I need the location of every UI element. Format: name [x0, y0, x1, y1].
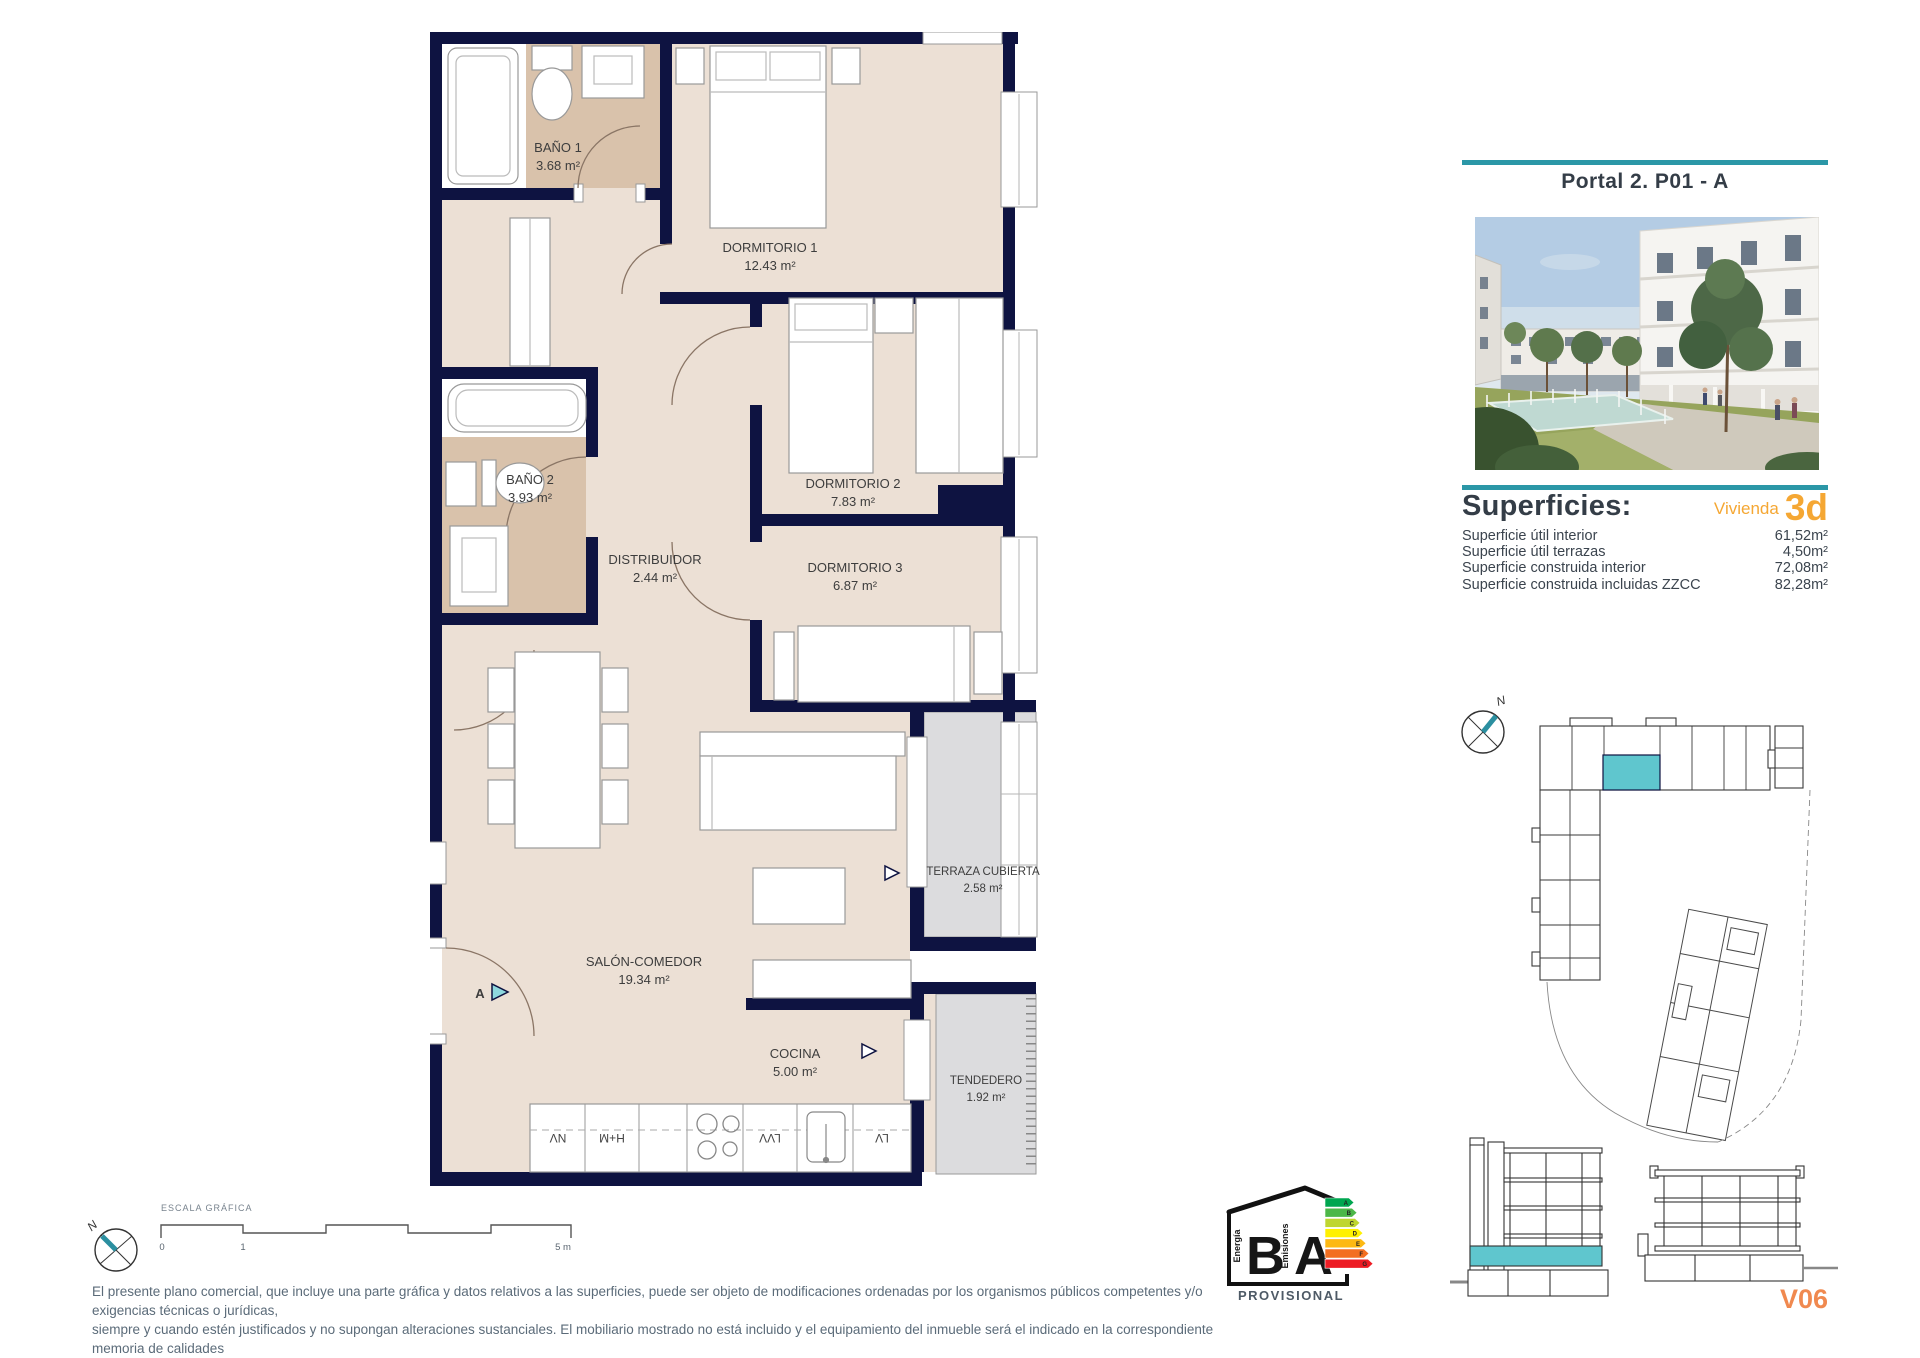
kitchen-sink — [807, 1112, 845, 1163]
energy-arrow — [1325, 1208, 1357, 1217]
table-row: Superficie útil terrazas 4,50m² — [1462, 544, 1828, 560]
page-title: Portal 2. P01 - A — [1460, 170, 1830, 194]
sofa-seat — [700, 756, 896, 830]
chair — [602, 724, 628, 768]
chair — [488, 668, 514, 712]
provisional-label: PROVISIONAL — [1238, 1288, 1344, 1303]
room-label: DORMITORIO 1 — [722, 240, 817, 255]
kitchen-peninsula — [753, 960, 911, 998]
sink-2a — [446, 462, 476, 506]
superficies-table: Superficie útil interior 61,52m² Superfi… — [1462, 528, 1828, 593]
dorm2-niche — [875, 298, 913, 333]
row-value: 72,08m² — [1775, 560, 1828, 576]
row-value: 4,50m² — [1783, 544, 1828, 560]
energy-badge: Energía B Emisiones A A B C D E F G PROV… — [1225, 1182, 1377, 1308]
table-row: Superficie construida incluidas ZZCC 82,… — [1462, 577, 1828, 593]
svg-text:B: B — [1347, 1211, 1352, 1217]
svg-text:C: C — [1350, 1221, 1355, 1227]
kitchen-counter — [530, 1104, 911, 1172]
scale-tick: 5 m — [555, 1242, 571, 1253]
scale-tick: 1 — [240, 1242, 245, 1253]
site-compass-icon: N — [1462, 693, 1507, 753]
room-label: DORMITORIO 2 — [805, 476, 900, 491]
room-label: SALÓN-COMEDOR — [586, 954, 702, 969]
section-right — [1638, 1166, 1838, 1281]
north-label: N — [86, 1217, 100, 1234]
chair — [602, 780, 628, 824]
kitchen-unit-label: LVV — [759, 1131, 781, 1145]
room-label: DORMITORIO 3 — [807, 560, 902, 575]
scale-label: ESCALA GRÁFICA — [161, 1203, 253, 1213]
room-label: BAÑO 2 — [506, 472, 554, 487]
energy-arrows — [1325, 1198, 1373, 1268]
row-value: 82,28m² — [1775, 577, 1828, 593]
toilet-1-bowl — [532, 68, 572, 120]
row-label: Superficie construida incluidas ZZCC — [1462, 577, 1701, 593]
room-area: 1.92 m² — [967, 1092, 1006, 1104]
disclaimer: El presente plano comercial, que incluye… — [92, 1282, 1262, 1358]
room-area: 12.43 m² — [744, 258, 796, 273]
svg-text:E: E — [1356, 1242, 1360, 1248]
toilet-2-tank — [482, 460, 496, 506]
disclaimer-line: El presente plano comercial, que incluye… — [92, 1282, 1262, 1320]
chair — [602, 668, 628, 712]
compass: N — [86, 1216, 152, 1280]
room-area: 2.58 m² — [964, 883, 1003, 895]
svg-text:D: D — [1353, 1232, 1358, 1238]
room-label: BAÑO 1 — [534, 140, 582, 155]
nightstand — [832, 48, 860, 84]
site-building-angled — [1647, 909, 1768, 1140]
room-label: DISTRIBUIDOR — [608, 552, 701, 567]
energy-arrow — [1325, 1229, 1363, 1238]
row-label: Superficie construida interior — [1462, 560, 1646, 576]
scale-bar: ESCALA GRÁFICA 0 1 5 m — [155, 1198, 625, 1254]
energy-arrow — [1325, 1218, 1360, 1227]
room-label: TERRAZA CUBIERTA — [926, 866, 1040, 878]
building-left — [1475, 255, 1501, 385]
entrance-label: A — [475, 986, 485, 1001]
room-area: 2.44 m² — [633, 570, 678, 585]
floor-plan: A BAÑO 1 3.68 m² DORMITORIO 1 12.43 m² B… — [430, 32, 1040, 1200]
site-north-label: N — [1495, 693, 1508, 709]
mask-outside — [910, 951, 1040, 982]
kitchen-unit-label: NV — [550, 1131, 567, 1145]
row-value: 61,52m² — [1775, 528, 1828, 544]
bed-3 — [798, 626, 970, 702]
highlighted-unit — [1603, 755, 1660, 790]
svg-text:F: F — [1359, 1252, 1363, 1258]
chair — [488, 724, 514, 768]
disclaimer-line: siempre y cuando estén justificados y no… — [92, 1320, 1262, 1358]
room-area: 7.83 m² — [831, 494, 876, 509]
svg-text:A: A — [1344, 1201, 1349, 1207]
vivienda-code: 3d — [1785, 493, 1828, 523]
room-area: 3.93 m² — [508, 490, 553, 505]
dining-table — [515, 652, 600, 848]
row-label: Superficie útil terrazas — [1462, 544, 1605, 560]
highlighted-floor — [1470, 1246, 1602, 1266]
svg-text:G: G — [1362, 1262, 1367, 1268]
coffee-table — [753, 868, 845, 924]
room-area: 3.68 m² — [536, 158, 581, 173]
toilet-1-tank — [532, 46, 572, 70]
section-left — [1450, 1138, 1608, 1296]
title-rule — [1462, 160, 1828, 165]
building-photo — [1475, 217, 1819, 470]
energy-arrow — [1325, 1198, 1354, 1207]
table-row: Superficie construida interior 72,08m² — [1462, 560, 1828, 576]
kitchen-unit-label: LV — [875, 1131, 889, 1145]
table-row: Superficie útil interior 61,52m² — [1462, 528, 1828, 544]
site-plan: N — [1450, 690, 1840, 1320]
energy-left-caption: Energía — [1232, 1229, 1242, 1263]
vivienda-tag: Vivienda 3d — [1714, 493, 1828, 523]
nightstand — [676, 48, 704, 84]
wardrobe-3 — [774, 632, 794, 700]
sofa-back — [700, 732, 905, 756]
room-area: 19.34 m² — [618, 972, 670, 987]
energy-right-caption: Emisiones — [1280, 1223, 1290, 1268]
superficies-heading: Superficies: — [1462, 490, 1632, 523]
room-area: 6.87 m² — [833, 578, 878, 593]
room-label: TENDEDERO — [950, 1075, 1022, 1087]
scale-tick: 0 — [159, 1242, 164, 1253]
room-area: 5.00 m² — [773, 1064, 818, 1079]
vivienda-label: Vivienda — [1714, 499, 1779, 523]
plan-code: V06 — [1780, 1284, 1828, 1314]
room-label: COCINA — [770, 1046, 821, 1061]
chair — [488, 780, 514, 824]
superficies-header: Superficies: Vivienda 3d — [1462, 490, 1828, 523]
row-label: Superficie útil interior — [1462, 528, 1597, 544]
kitchen-unit-label: H+M — [599, 1131, 625, 1145]
